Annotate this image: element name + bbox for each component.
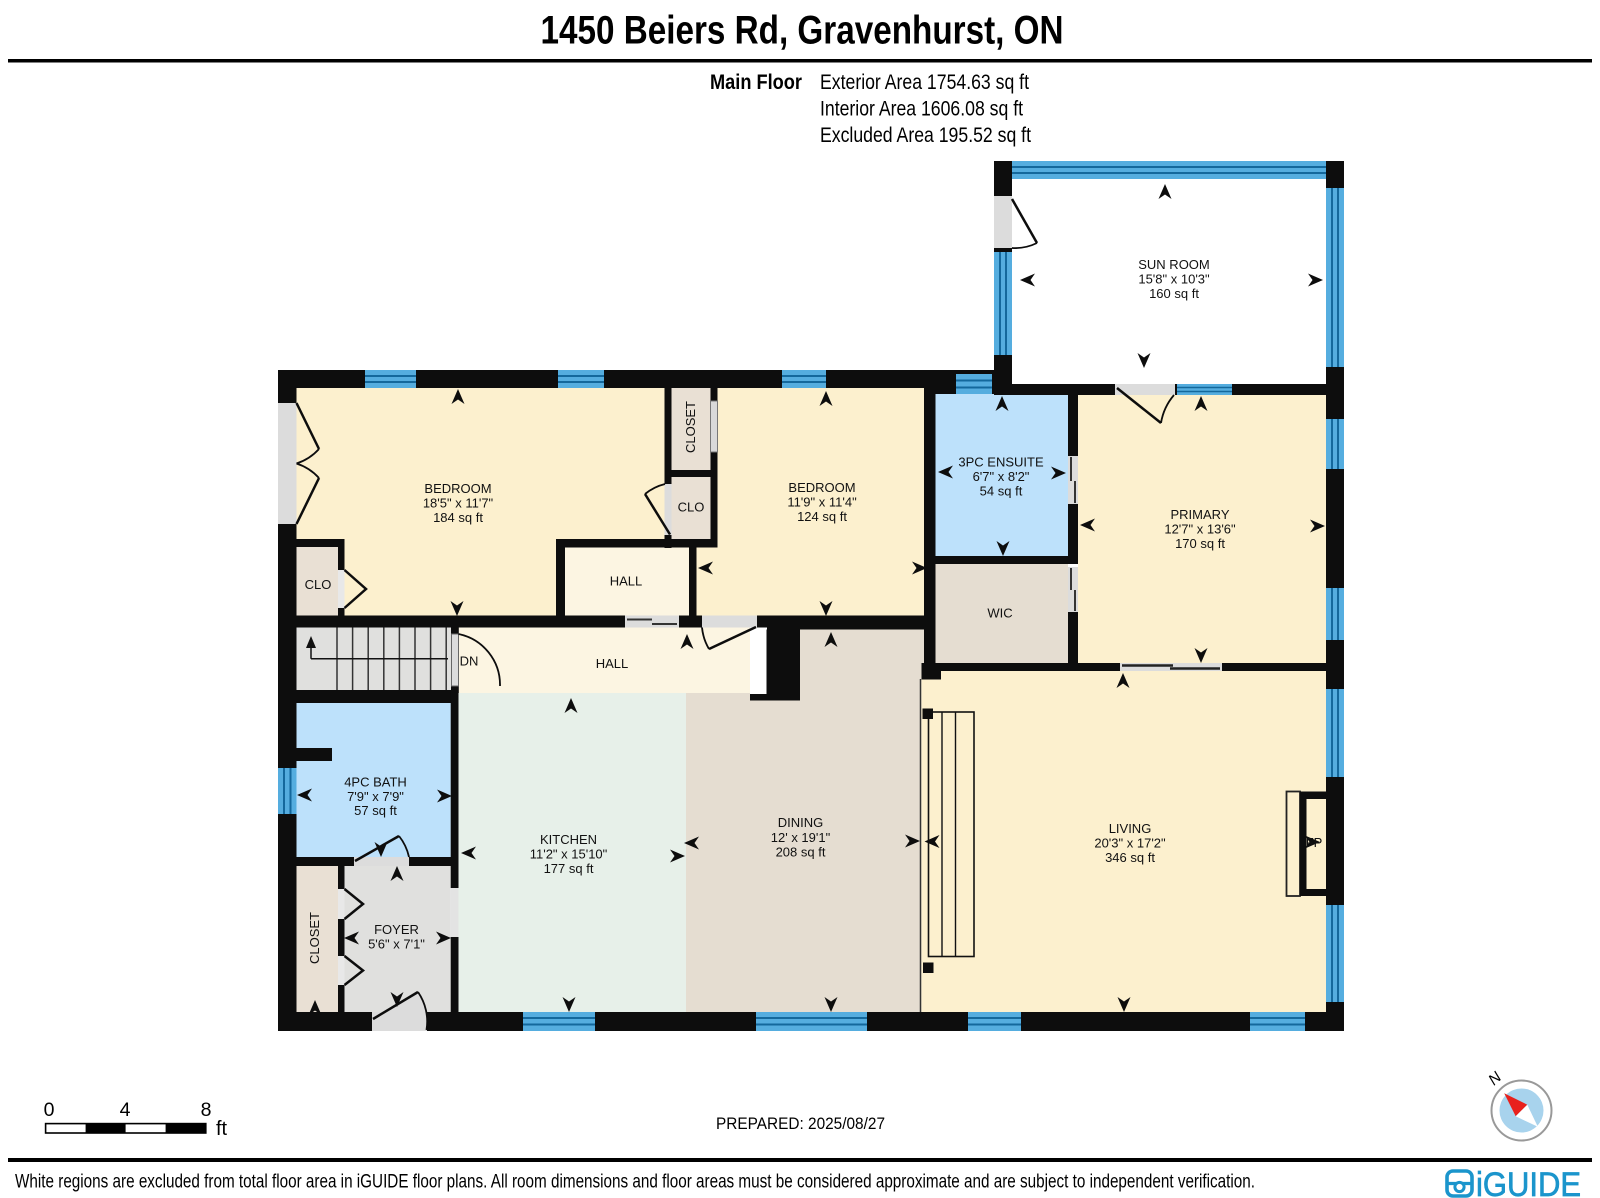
svg-text:PREPARED: 2025/08/27: PREPARED: 2025/08/27 [716,1114,885,1133]
svg-text:18'5" x 11'7": 18'5" x 11'7" [423,496,494,511]
svg-text:3PC ENSUITE: 3PC ENSUITE [958,455,1044,470]
svg-text:346 sq ft: 346 sq ft [1105,850,1155,865]
svg-text:BEDROOM: BEDROOM [788,480,855,495]
svg-text:Interior Area 1606.08 sq ft: Interior Area 1606.08 sq ft [820,98,1023,121]
svg-text:HALL: HALL [610,574,643,589]
svg-text:DINING: DINING [778,815,824,830]
svg-text:6'7" x 8'2": 6'7" x 8'2" [973,469,1030,484]
svg-text:KITCHEN: KITCHEN [540,832,597,847]
svg-text:CLO: CLO [305,577,332,592]
svg-text:208 sq ft: 208 sq ft [776,845,826,860]
svg-text:57 sq ft: 57 sq ft [354,803,397,818]
svg-text:4PC BATH: 4PC BATH [344,775,407,790]
svg-text:CLOSET: CLOSET [683,401,698,453]
svg-text:8: 8 [201,1099,212,1121]
svg-text:CLOSET: CLOSET [307,912,322,964]
svg-text:FOYER: FOYER [374,922,419,937]
svg-text:54 sq ft: 54 sq ft [980,484,1023,499]
svg-text:White regions are excluded fro: White regions are excluded from total fl… [15,1172,1255,1193]
svg-text:15'8" x 10'3": 15'8" x 10'3" [1138,272,1210,287]
svg-text:BEDROOM: BEDROOM [424,481,491,496]
svg-text:170 sq ft: 170 sq ft [1175,536,1225,551]
svg-text:12' x 19'1": 12' x 19'1" [771,830,831,845]
svg-text:DN: DN [460,654,479,669]
svg-text:HALL: HALL [596,656,629,671]
svg-text:SUN ROOM: SUN ROOM [1138,257,1210,272]
svg-text:11'2" x 15'10": 11'2" x 15'10" [530,847,608,862]
svg-text:ft: ft [216,1118,228,1140]
svg-text:Exterior Area 1754.63 sq ft: Exterior Area 1754.63 sq ft [820,71,1029,94]
svg-text:7'9" x 7'9": 7'9" x 7'9" [347,789,404,804]
svg-text:184 sq ft: 184 sq ft [433,510,483,525]
svg-text:1450 Beiers Rd, Gravenhurst, O: 1450 Beiers Rd, Gravenhurst, ON [541,9,1064,53]
svg-text:124 sq ft: 124 sq ft [797,509,847,524]
svg-text:177 sq ft: 177 sq ft [544,861,594,876]
svg-text:5'6" x 7'1": 5'6" x 7'1" [368,937,425,952]
svg-text:11'9" x 11'4": 11'9" x 11'4" [787,495,857,510]
svg-text:WIC: WIC [987,606,1012,621]
svg-text:iGUIDE: iGUIDE [1476,1166,1581,1198]
svg-text:FP: FP [1306,835,1323,850]
svg-text:Excluded Area 195.52 sq ft: Excluded Area 195.52 sq ft [820,124,1031,147]
svg-text:20'3" x 17'2": 20'3" x 17'2" [1094,836,1166,851]
svg-text:160 sq ft: 160 sq ft [1149,286,1199,301]
svg-text:Main Floor: Main Floor [710,71,802,94]
svg-text:CLO: CLO [678,500,705,515]
svg-text:4: 4 [120,1099,131,1121]
svg-text:PRIMARY: PRIMARY [1171,507,1230,522]
svg-text:0: 0 [44,1099,55,1121]
svg-text:LIVING: LIVING [1109,821,1152,836]
svg-text:12'7" x 13'6": 12'7" x 13'6" [1164,522,1236,537]
